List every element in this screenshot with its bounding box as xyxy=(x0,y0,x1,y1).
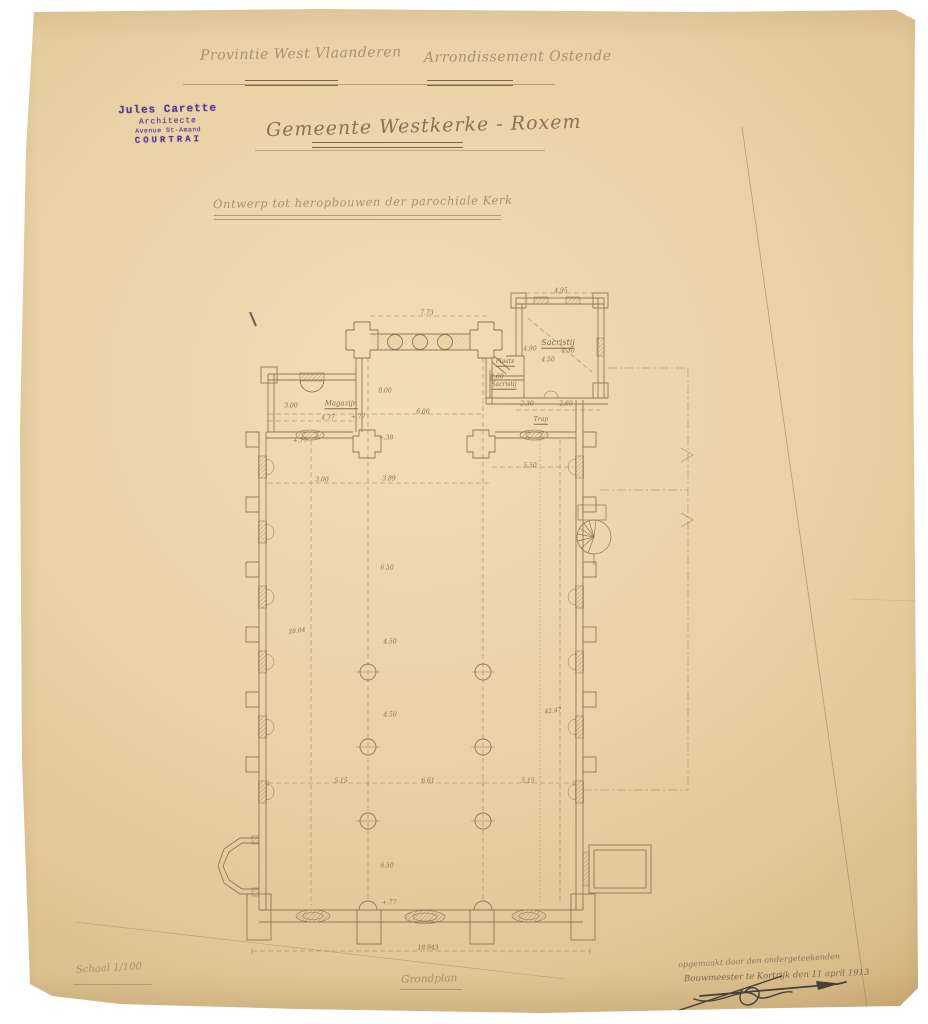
dimension-label: +.77 xyxy=(293,438,308,445)
pencil-mark xyxy=(250,312,256,326)
column-base xyxy=(296,430,548,440)
scale-underline xyxy=(73,984,152,985)
dimension-label: 4.30 xyxy=(561,348,574,355)
scanned-drawing-page: Provintie West Vlaanderen Arrondissement… xyxy=(0,0,928,1024)
plan-type-underline xyxy=(400,989,462,990)
dimension-label: 2.30 xyxy=(520,401,533,408)
nave-columns xyxy=(360,664,491,829)
dimension-label: 4.50 xyxy=(383,712,396,719)
dimension-label: 3.89 xyxy=(382,476,395,483)
dimension-label: 4.90 xyxy=(523,346,536,353)
drawing-sheet: Provintie West Vlaanderen Arrondissement… xyxy=(0,0,928,1024)
dimension-label: 5.15 xyxy=(521,778,534,785)
octagonal-turret xyxy=(218,838,259,894)
signature xyxy=(650,960,880,1024)
dimension-label: 4.50 xyxy=(541,357,554,364)
dimension-label: 2.60 xyxy=(559,401,572,408)
floor-plan-drawing xyxy=(0,0,928,1024)
dimension-label: 6.00 xyxy=(416,409,429,416)
dimension-label: 4.50 xyxy=(383,639,396,646)
plan-type-label: Grondplan xyxy=(401,972,458,986)
room-label: Plaats xyxy=(496,358,515,367)
dimension-label: +.77 xyxy=(351,414,366,421)
dimension-label: 5.50 xyxy=(523,463,536,470)
dimension-label: 2.60 xyxy=(490,374,503,381)
dimension-label: 5.15 xyxy=(334,778,347,785)
dimension-label: 7.73 xyxy=(420,310,433,317)
dimension-label: 3.00 xyxy=(284,403,297,410)
paper-crease-lines xyxy=(75,127,918,1007)
room-label: Trap xyxy=(534,416,548,425)
dimension-label: 6.50 xyxy=(380,565,393,572)
column-base xyxy=(296,910,546,924)
spiral-staircase xyxy=(577,505,611,565)
dimension-label: 6.50 xyxy=(380,863,393,870)
dimension-label: +.38 xyxy=(379,435,394,442)
dimension-label: 3.00 xyxy=(315,477,328,484)
dimension-label: 18.943 xyxy=(418,945,439,952)
dimension-label: 4.95 xyxy=(554,288,567,295)
dimension-label: 8.00 xyxy=(378,388,391,395)
dimension-label: 6.61 xyxy=(421,778,434,785)
room-label: Sacristij xyxy=(491,381,516,390)
annex-room xyxy=(589,845,651,893)
dimension-label: 4.77 xyxy=(321,415,334,422)
room-label: Magazijn xyxy=(325,399,358,409)
construction-lines xyxy=(583,368,693,790)
dimension-label: +.77 xyxy=(382,900,397,907)
